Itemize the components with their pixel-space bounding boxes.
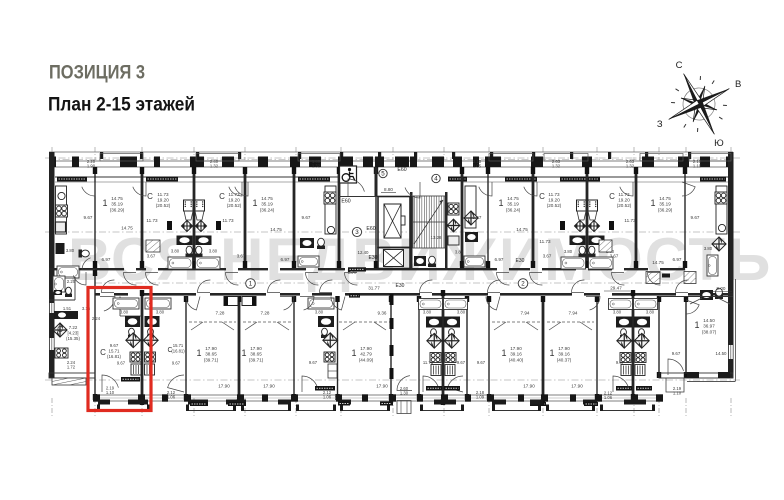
- svg-text:С: С: [100, 348, 106, 357]
- svg-text:(20.52): (20.52): [617, 203, 632, 208]
- svg-text:1: 1: [650, 198, 655, 208]
- svg-text:11.73: 11.73: [539, 239, 551, 244]
- svg-text:11.73: 11.73: [423, 360, 434, 365]
- svg-text:3.80: 3.80: [209, 249, 218, 254]
- svg-text:С: С: [676, 60, 683, 71]
- svg-text:9.67: 9.67: [457, 360, 466, 365]
- svg-text:11.73: 11.73: [157, 192, 169, 197]
- svg-text:14.75: 14.75: [516, 227, 528, 232]
- svg-text:(15.35): (15.35): [66, 336, 80, 341]
- svg-text:19.20: 19.20: [157, 198, 169, 203]
- svg-text:9.67: 9.67: [302, 215, 311, 220]
- svg-text:38.65: 38.65: [250, 352, 262, 357]
- svg-text:1.30: 1.30: [400, 391, 409, 396]
- svg-text:(36.29): (36.29): [658, 208, 673, 213]
- svg-text:3.80: 3.80: [423, 310, 432, 315]
- svg-text:14.75: 14.75: [261, 196, 273, 201]
- svg-text:3.67: 3.67: [543, 254, 552, 259]
- svg-text:14.75: 14.75: [507, 196, 519, 201]
- svg-text:9.67: 9.67: [110, 343, 119, 348]
- svg-text:17.90: 17.90: [205, 346, 217, 351]
- svg-text:[4.23]: [4.23]: [68, 331, 79, 336]
- svg-text:6.97: 6.97: [495, 257, 504, 262]
- svg-text:1.32: 1.32: [552, 164, 561, 169]
- svg-text:14.75: 14.75: [121, 226, 133, 231]
- svg-text:39.16: 39.16: [558, 352, 570, 357]
- svg-text:E60: E60: [341, 199, 350, 205]
- svg-text:1.09: 1.09: [476, 395, 485, 400]
- svg-text:1: 1: [498, 198, 503, 208]
- svg-text:С: С: [609, 192, 615, 201]
- svg-text:9.67: 9.67: [691, 215, 700, 220]
- svg-text:В: В: [735, 79, 741, 90]
- svg-text:35.19: 35.19: [111, 202, 123, 207]
- svg-text:3.67: 3.67: [147, 254, 156, 259]
- svg-text:35.19: 35.19: [261, 202, 273, 207]
- svg-text:(38.07): (38.07): [702, 330, 717, 335]
- svg-text:6.97: 6.97: [281, 257, 290, 262]
- svg-text:(20.52): (20.52): [156, 203, 171, 208]
- svg-text:9.67: 9.67: [84, 215, 93, 220]
- svg-text:9.36: 9.36: [378, 311, 387, 316]
- svg-text:14.75: 14.75: [270, 227, 282, 232]
- svg-text:9.67: 9.67: [172, 361, 181, 366]
- svg-text:(36.24): (36.24): [260, 208, 275, 213]
- svg-text:17.90: 17.90: [218, 384, 230, 389]
- svg-text:1.05: 1.05: [473, 164, 482, 169]
- svg-text:7.94: 7.94: [569, 311, 578, 316]
- svg-text:С: С: [57, 325, 63, 334]
- svg-text:3.80: 3.80: [171, 249, 180, 254]
- svg-text:7.28: 7.28: [216, 311, 225, 316]
- svg-text:19.20: 19.20: [548, 198, 560, 203]
- svg-text:1.32: 1.32: [626, 164, 635, 169]
- svg-text:36.97: 36.97: [703, 324, 715, 329]
- svg-text:1.72: 1.72: [67, 365, 76, 370]
- svg-text:17.90: 17.90: [571, 384, 583, 389]
- svg-text:17.90: 17.90: [523, 384, 535, 389]
- svg-text:1: 1: [249, 281, 253, 288]
- svg-text:3: 3: [355, 229, 359, 236]
- svg-text:17.90: 17.90: [250, 346, 262, 351]
- svg-text:1.06: 1.06: [323, 395, 332, 400]
- svg-text:(16.81): (16.81): [107, 354, 121, 359]
- svg-text:29.47: 29.47: [610, 286, 622, 291]
- svg-text:1.90: 1.90: [87, 164, 96, 169]
- svg-text:3.80: 3.80: [455, 250, 464, 255]
- svg-text:1: 1: [694, 320, 699, 330]
- svg-text:38.65: 38.65: [205, 352, 217, 357]
- svg-text:8.80: 8.80: [384, 187, 393, 192]
- svg-text:1: 1: [501, 348, 506, 358]
- svg-text:E30: E30: [369, 255, 378, 261]
- svg-text:11.73: 11.73: [146, 218, 158, 223]
- svg-text:11.73: 11.73: [228, 192, 240, 197]
- svg-text:9.67: 9.67: [309, 360, 318, 365]
- svg-text:9.67: 9.67: [473, 215, 482, 220]
- svg-text:(44.09): (44.09): [359, 358, 374, 363]
- svg-text:З: З: [657, 119, 663, 130]
- svg-text:7.22: 7.22: [69, 325, 78, 330]
- svg-text:14.75: 14.75: [111, 196, 123, 201]
- svg-text:7.94: 7.94: [521, 311, 530, 316]
- svg-text:С: С: [219, 192, 225, 201]
- svg-text:1.10: 1.10: [693, 164, 702, 169]
- svg-text:7.28: 7.28: [261, 311, 270, 316]
- svg-text:(36.24): (36.24): [506, 208, 521, 213]
- svg-text:11.73: 11.73: [222, 218, 234, 223]
- svg-text:15.71: 15.71: [109, 349, 121, 354]
- svg-text:14.50: 14.50: [703, 318, 715, 323]
- svg-text:1.10: 1.10: [673, 391, 682, 396]
- svg-text:4: 4: [434, 176, 438, 183]
- svg-text:11.73: 11.73: [548, 192, 560, 197]
- svg-text:17.90: 17.90: [360, 346, 372, 351]
- svg-text:9.67: 9.67: [477, 360, 486, 365]
- svg-text:1.51: 1.51: [63, 306, 72, 311]
- svg-text:14.50: 14.50: [716, 351, 728, 356]
- svg-text:6.97: 6.97: [673, 257, 682, 262]
- svg-text:3.80: 3.80: [66, 248, 75, 253]
- svg-text:39.16: 39.16: [510, 352, 522, 357]
- svg-text:19.20: 19.20: [228, 198, 240, 203]
- svg-text:3.80: 3.80: [646, 310, 655, 315]
- svg-text:14.75: 14.75: [652, 260, 664, 265]
- svg-text:9.00: 9.00: [717, 286, 726, 291]
- svg-text:План 2-15 этажей: План 2-15 этажей: [48, 94, 195, 116]
- svg-text:5: 5: [381, 171, 385, 178]
- svg-text:42.79: 42.79: [360, 352, 372, 357]
- svg-text:35.19: 35.19: [507, 202, 519, 207]
- svg-text:17.90: 17.90: [510, 346, 522, 351]
- svg-text:Ю: Ю: [714, 138, 724, 149]
- svg-text:(39.71): (39.71): [249, 358, 264, 363]
- svg-text:2.24: 2.24: [92, 316, 101, 321]
- svg-text:3.67: 3.67: [610, 254, 619, 259]
- svg-text:19.20: 19.20: [618, 198, 630, 203]
- svg-text:9.67: 9.67: [117, 361, 126, 366]
- svg-text:12.40: 12.40: [358, 250, 370, 255]
- svg-text:35.19: 35.19: [659, 202, 671, 207]
- svg-text:3.80: 3.80: [120, 310, 129, 315]
- svg-text:1: 1: [549, 348, 554, 358]
- svg-text:3.80: 3.80: [613, 310, 622, 315]
- svg-text:13.28: 13.28: [431, 235, 443, 240]
- svg-text:1.32: 1.32: [312, 164, 321, 169]
- svg-text:(36.29): (36.29): [110, 208, 125, 213]
- svg-text:1: 1: [241, 348, 246, 358]
- svg-text:2: 2: [521, 281, 525, 288]
- svg-text:17.90: 17.90: [376, 384, 388, 389]
- svg-text:1.06: 1.06: [604, 395, 613, 400]
- svg-text:1: 1: [196, 348, 201, 358]
- svg-text:6.97: 6.97: [102, 257, 111, 262]
- svg-text:1: 1: [252, 198, 257, 208]
- svg-text:14.75: 14.75: [659, 196, 671, 201]
- svg-text:ПОЗИЦИЯ 3: ПОЗИЦИЯ 3: [49, 62, 145, 84]
- svg-text:15.71: 15.71: [173, 343, 184, 348]
- svg-text:17.90: 17.90: [263, 384, 275, 389]
- svg-text:(40.40): (40.40): [509, 358, 524, 363]
- svg-text:3.67: 3.67: [237, 254, 246, 259]
- svg-text:2.25: 2.25: [67, 279, 76, 284]
- svg-text:17.90: 17.90: [558, 346, 570, 351]
- svg-text:С: С: [147, 192, 153, 201]
- svg-text:E60: E60: [397, 167, 406, 173]
- svg-text:3.80: 3.80: [704, 246, 713, 251]
- svg-text:31.77: 31.77: [368, 286, 380, 291]
- svg-text:1.32: 1.32: [210, 164, 219, 169]
- svg-text:E60: E60: [366, 226, 375, 232]
- svg-text:3.80: 3.80: [315, 310, 324, 315]
- svg-text:3.80: 3.80: [564, 249, 573, 254]
- svg-text:1.06: 1.06: [167, 395, 176, 400]
- svg-text:С: С: [539, 192, 545, 201]
- svg-text:(16.81): (16.81): [171, 349, 185, 354]
- svg-text:1: 1: [351, 348, 356, 358]
- svg-text:3.80: 3.80: [457, 310, 466, 315]
- svg-text:11.73: 11.73: [624, 218, 636, 223]
- svg-text:9.67: 9.67: [672, 351, 681, 356]
- svg-text:(39.71): (39.71): [204, 358, 219, 363]
- svg-text:E30: E30: [516, 258, 525, 264]
- svg-text:1.10: 1.10: [106, 390, 115, 395]
- svg-text:1: 1: [102, 198, 107, 208]
- svg-text:(40.37): (40.37): [557, 358, 572, 363]
- svg-text:(20.52): (20.52): [227, 203, 242, 208]
- svg-text:E30: E30: [396, 283, 405, 289]
- svg-text:3.80: 3.80: [156, 310, 165, 315]
- svg-text:(20.52): (20.52): [547, 203, 562, 208]
